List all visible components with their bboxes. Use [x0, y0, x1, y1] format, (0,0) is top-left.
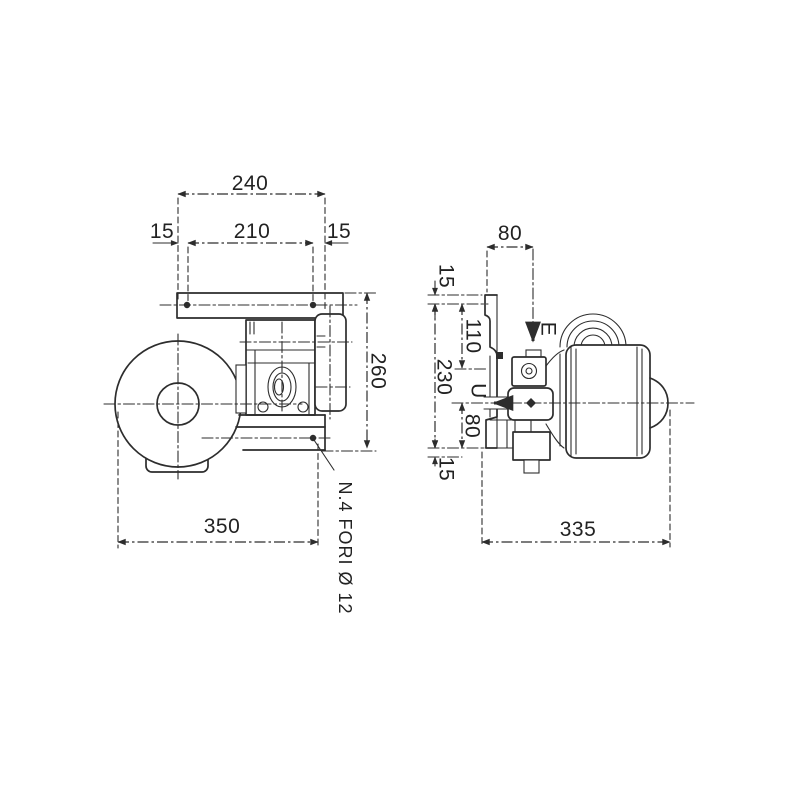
dim-15-bottom-label: 15	[435, 457, 458, 481]
holes-leader-line	[314, 440, 334, 470]
inlet-bolt-circle	[522, 364, 537, 379]
dim-230-label: 230	[433, 359, 456, 396]
front-view: 240 15 210 15 260 350 N.4 FORI Ø 12	[104, 172, 390, 615]
base-plate	[236, 415, 325, 450]
dim-210-label: 210	[234, 220, 271, 243]
dim-15-left-label: 15	[150, 220, 174, 243]
dim-110-label: 110	[462, 319, 485, 354]
side-view: E U 80 15 110 230 80 15	[428, 222, 694, 547]
outlet-label: U	[467, 383, 490, 399]
dim-240-label: 240	[232, 172, 269, 195]
inlet-label: E	[537, 322, 560, 337]
holes-note-label: N.4 FORI Ø 12	[335, 481, 355, 614]
dim-350-label: 350	[204, 515, 241, 538]
ext-lines-15-top	[428, 295, 488, 304]
dim-80-top-label: 80	[498, 222, 522, 245]
bracket-profile	[485, 295, 497, 448]
drain-block	[513, 432, 550, 460]
motor-dome-rings	[560, 314, 626, 347]
dim-15-top-label: 15	[435, 264, 458, 288]
inlet-boss	[526, 350, 541, 357]
ext-lines-15-bottom	[428, 448, 500, 457]
dim-15-right-label: 15	[327, 220, 351, 243]
dim-335-label: 335	[560, 518, 597, 541]
drain-stem	[524, 460, 539, 473]
dim-260-label: 260	[367, 353, 390, 390]
dim-80-bottom-label: 80	[461, 414, 484, 438]
bracket-weld-dot	[496, 352, 503, 359]
technical-drawing: 240 15 210 15 260 350 N.4 FORI Ø 12	[0, 0, 800, 800]
drawing-sheet: 240 15 210 15 260 350 N.4 FORI Ø 12	[0, 0, 800, 800]
base-channel-side	[485, 420, 515, 448]
pump-side-stub	[236, 365, 246, 413]
